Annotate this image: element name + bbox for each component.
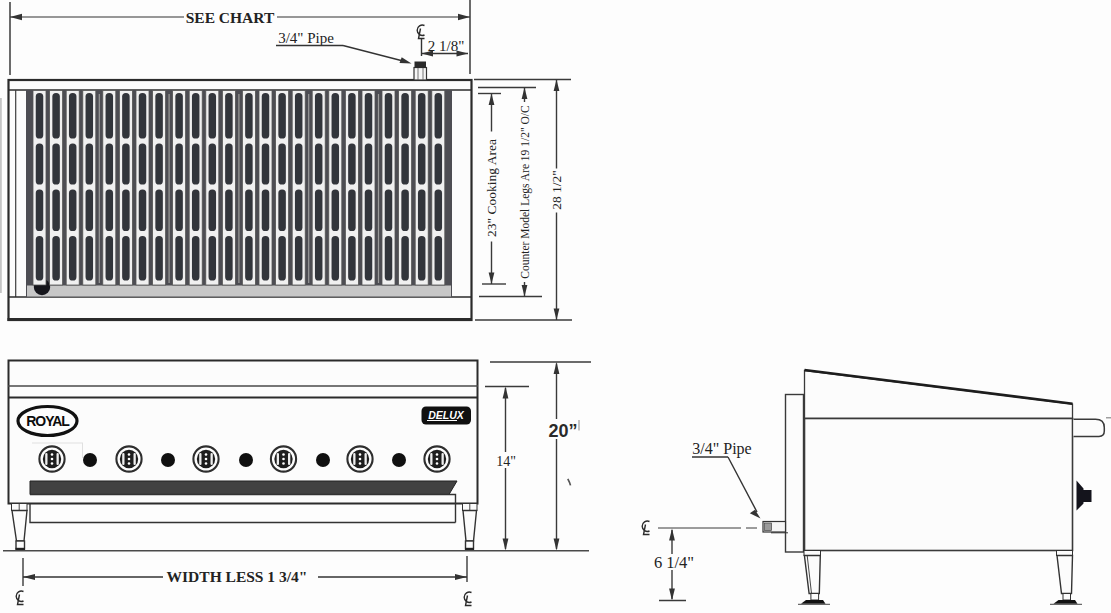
- svg-text:DELUX: DELUX: [428, 409, 465, 421]
- svg-text:20”: 20”: [548, 421, 577, 441]
- svg-text:Counter Model Legs Are 19 1/2": Counter Model Legs Are 19 1/2" O/C: [519, 105, 532, 279]
- svg-text:28 1/2": 28 1/2": [549, 170, 564, 210]
- svg-text:WIDTH LESS 1 3/4": WIDTH LESS 1 3/4": [167, 568, 308, 585]
- svg-text:3/4" Pipe: 3/4" Pipe: [692, 440, 751, 458]
- svg-text:6 1/4": 6 1/4": [654, 553, 694, 572]
- svg-text:ROYAL: ROYAL: [26, 413, 70, 429]
- svg-text:3/4" Pipe: 3/4" Pipe: [278, 30, 334, 46]
- svg-text:2 1/8": 2 1/8": [428, 38, 465, 54]
- svg-text:SEE CHART: SEE CHART: [186, 9, 275, 26]
- svg-text:23" Cooking Area: 23" Cooking Area: [484, 139, 499, 237]
- svg-text:14": 14": [496, 454, 516, 469]
